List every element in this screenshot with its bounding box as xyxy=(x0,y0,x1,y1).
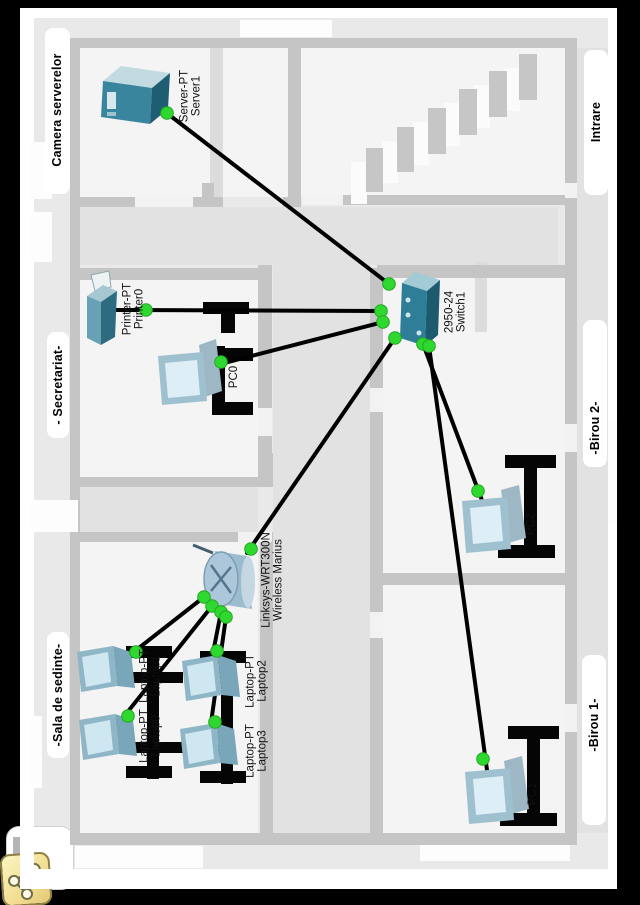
device-label-wireless: Linksys-WRT300NWireless Marius xyxy=(261,532,286,628)
device-label-line: Laptop-PT xyxy=(245,724,257,778)
device-label-line: PC1 xyxy=(527,783,539,805)
device-label-line: Server1 xyxy=(191,76,203,116)
device-label-line: Printer-PT xyxy=(122,283,134,335)
device-printer0[interactable] xyxy=(87,271,117,345)
device-label-printer0: Printer-PTPrinter0 xyxy=(122,283,147,335)
device-label-line: Linksys-WRT300N xyxy=(261,532,273,628)
cable-pc1-switch1[interactable] xyxy=(429,346,487,770)
room-label-birou2: -Birou 2- xyxy=(588,401,602,454)
link-status-dot xyxy=(161,107,174,120)
device-label-line: Laptop2 xyxy=(257,660,269,702)
device-switch1[interactable] xyxy=(400,272,440,346)
device-pc1[interactable] xyxy=(465,756,529,824)
room-label-sala-de-sedinte: -Sala de sedinte- xyxy=(51,644,65,747)
device-label-line: Switch1 xyxy=(456,292,468,332)
link-status-dot xyxy=(122,710,135,723)
device-label-line: Laptop3 xyxy=(257,730,269,772)
link-status-dot xyxy=(215,356,228,369)
link-status-dot xyxy=(423,340,436,353)
room-label-camera-serverelor: Camera serverelor xyxy=(50,53,64,166)
device-server1[interactable] xyxy=(101,66,170,124)
room-label-secretariat: - Secretariat- xyxy=(51,345,65,424)
link-status-dot xyxy=(245,543,258,556)
device-label-switch1: 2950-24Switch1 xyxy=(444,291,469,333)
device-laptop3[interactable] xyxy=(180,723,238,769)
device-label-laptop1: Laptop-PTLaptop1 xyxy=(139,649,164,703)
cable-wireless-switch1[interactable] xyxy=(247,338,395,553)
link-status-dot xyxy=(383,278,396,291)
packet-tracer-workspace: Camera serverelor- Secretariat--Sala de … xyxy=(0,0,640,905)
link-status-dot xyxy=(477,753,490,766)
cable-pc0-switch1[interactable] xyxy=(205,322,383,368)
link-status-dot xyxy=(377,316,390,329)
room-label-birou1: -Birou 1- xyxy=(587,698,601,751)
device-label-pc0: PC0 xyxy=(228,366,240,388)
link-status-dot xyxy=(375,305,388,318)
link-status-dot xyxy=(220,611,233,624)
device-label-line: Wireless Marius xyxy=(273,539,285,621)
device-laptop1[interactable] xyxy=(77,646,135,692)
link-status-dot xyxy=(198,591,211,604)
link-status-dot xyxy=(209,716,222,729)
device-label-line: Laptop-PT xyxy=(139,649,151,703)
device-pc0[interactable] xyxy=(158,339,222,405)
link-status-dot xyxy=(472,485,485,498)
device-label-pc2: PC2 xyxy=(525,513,537,535)
cable-server1-switch1[interactable] xyxy=(155,104,389,284)
device-label-pc1: PC1 xyxy=(527,783,539,805)
device-label-laptop3: Laptop-PTLaptop3 xyxy=(245,724,270,778)
device-label-line: Laptop1 xyxy=(151,655,163,697)
device-label-line: 2950-24 xyxy=(444,291,456,333)
device-label-line: Laptop0 xyxy=(151,715,163,757)
device-label-line: Laptop-PT xyxy=(139,709,151,763)
device-label-laptop2: Laptop-PTLaptop2 xyxy=(245,654,270,708)
device-label-line: PC2 xyxy=(525,513,537,535)
link-status-dot xyxy=(389,332,402,345)
device-label-line: PC0 xyxy=(228,366,240,388)
network-overlay xyxy=(0,0,640,905)
device-pc2[interactable] xyxy=(462,485,526,553)
device-label-line: Server-PT xyxy=(179,70,191,122)
device-label-line: Laptop-PT xyxy=(245,654,257,708)
device-laptop2[interactable] xyxy=(182,655,240,701)
link-status-dot xyxy=(211,645,224,658)
device-label-line: Printer0 xyxy=(134,289,146,329)
device-label-server1: Server-PTServer1 xyxy=(179,70,204,122)
room-label-intrare: Intrare xyxy=(589,102,603,142)
device-label-laptop0: Laptop-PTLaptop0 xyxy=(139,709,164,763)
